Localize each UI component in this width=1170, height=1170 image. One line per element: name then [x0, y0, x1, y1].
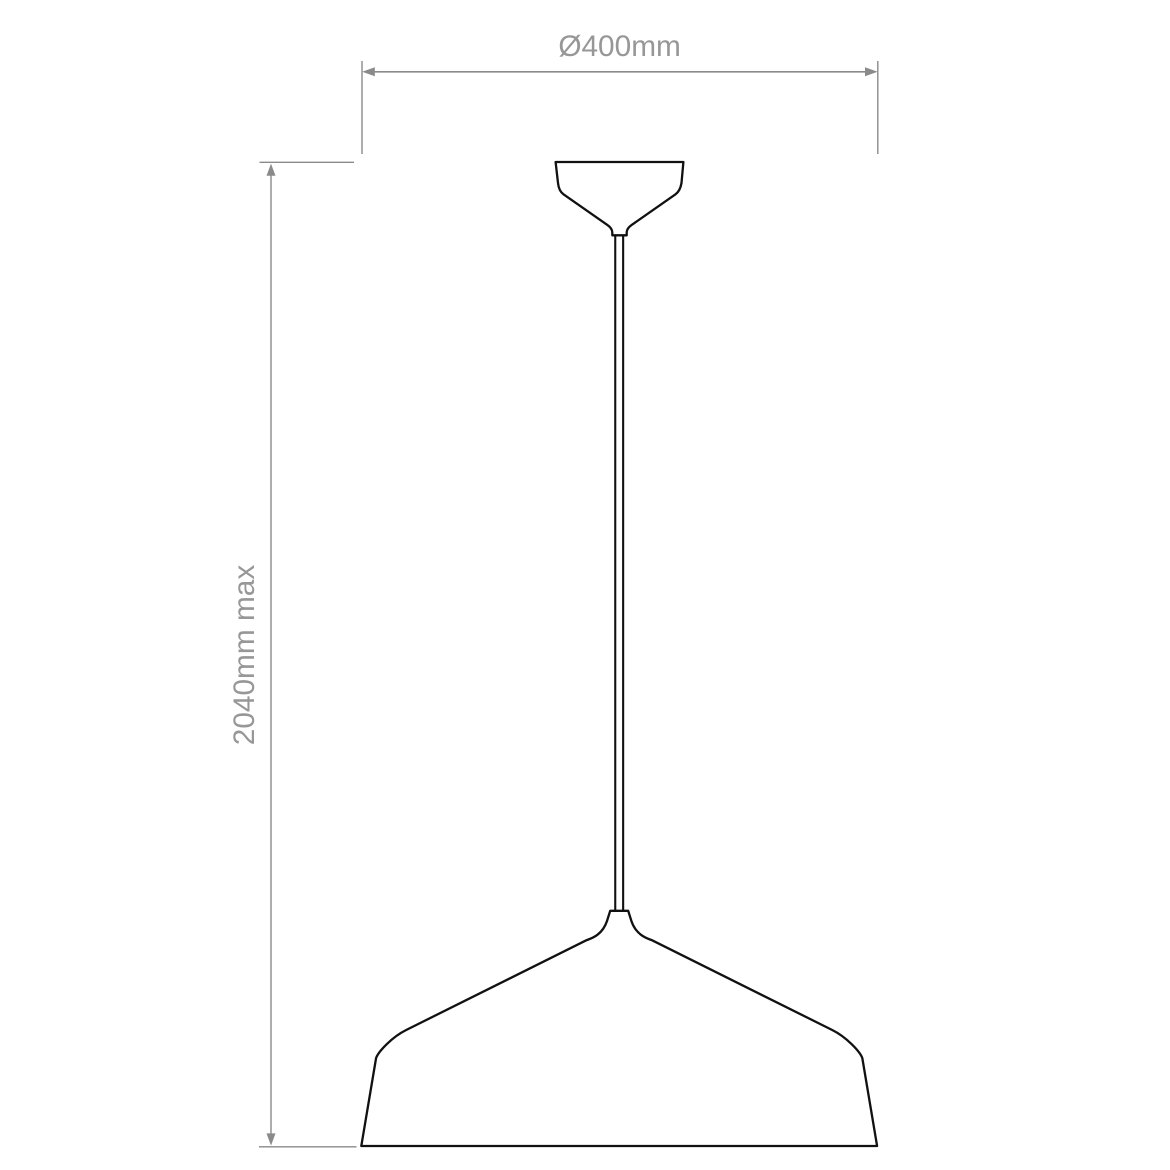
- svg-text:Ø400mm: Ø400mm: [558, 30, 681, 63]
- svg-text:2040mm max: 2040mm max: [228, 565, 261, 746]
